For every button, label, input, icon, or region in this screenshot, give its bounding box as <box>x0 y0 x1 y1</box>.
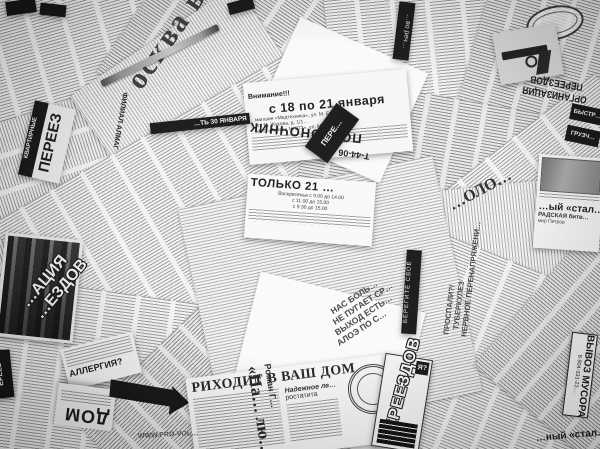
scrap-tolko: ТОЛЬКО 21 … Воскресенье с 9.00 до 14.00 … <box>244 174 376 247</box>
newspaper-collage-photo: осква в ФИЛИАЛ АЛМАГ …во реч… Внимание!!… <box>0 0 600 449</box>
label-gruzchiki: ГРУЗЧ… <box>565 125 600 148</box>
dom-text: ДОМ <box>58 402 110 429</box>
scrap-dom: ДОМ <box>54 383 117 432</box>
vnimanie-label: Внимание!!! <box>248 90 290 101</box>
left-edge-text: ЕРЕЕЗ <box>0 351 11 396</box>
article-photo <box>540 157 600 195</box>
scrap-stalingrad: …ый «стал… РАДСКАЯ битв… мир Петров <box>533 154 600 252</box>
ad-chip <box>39 3 66 18</box>
phone-table <box>377 419 418 449</box>
